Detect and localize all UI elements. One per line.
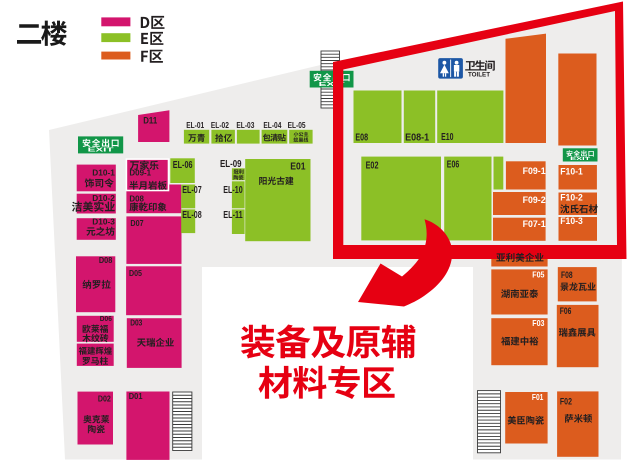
svg-text:EL-05: EL-05 <box>288 120 306 130</box>
svg-text:D10-3: D10-3 <box>92 218 115 227</box>
svg-text:F01: F01 <box>532 392 544 402</box>
svg-text:EL-09: EL-09 <box>220 159 242 170</box>
svg-text:F07-1: F07-1 <box>523 219 546 229</box>
svg-text:E08-1: E08-1 <box>405 132 430 143</box>
svg-text:F10-2: F10-2 <box>560 193 583 203</box>
svg-text:D10-2: D10-2 <box>92 194 115 203</box>
svg-text:D02: D02 <box>98 393 111 403</box>
svg-text:EL-01: EL-01 <box>186 120 204 130</box>
svg-text:E02: E02 <box>366 160 379 171</box>
svg-text:E01: E01 <box>290 161 306 172</box>
svg-text:F03: F03 <box>532 318 544 328</box>
svg-text:E10: E10 <box>441 132 453 143</box>
svg-text:E08: E08 <box>355 132 368 143</box>
svg-text:D01: D01 <box>129 391 143 401</box>
svg-text:D11: D11 <box>143 116 157 127</box>
svg-text:D08: D08 <box>99 256 113 265</box>
svg-text:EL-06: EL-06 <box>173 160 193 171</box>
svg-text:D10-1: D10-1 <box>92 169 115 178</box>
svg-text:TOILET: TOILET <box>468 72 490 79</box>
svg-text:D08: D08 <box>129 193 144 203</box>
svg-text:EL-04: EL-04 <box>263 120 281 130</box>
svg-text:EL-11: EL-11 <box>223 210 243 221</box>
svg-text:E06: E06 <box>447 159 460 170</box>
svg-text:F10-3: F10-3 <box>560 216 583 226</box>
svg-text:EL-07: EL-07 <box>182 185 202 196</box>
svg-text:F09-1: F09-1 <box>523 166 546 176</box>
svg-text:D05: D05 <box>129 268 142 278</box>
svg-text:F10-1: F10-1 <box>560 166 583 176</box>
svg-text:EL-03: EL-03 <box>236 120 254 130</box>
svg-text:F02: F02 <box>560 397 572 407</box>
svg-text:D07: D07 <box>130 218 143 228</box>
svg-text:EXIT: EXIT <box>570 156 591 161</box>
svg-text:F09-2: F09-2 <box>523 195 546 205</box>
svg-text:F08: F08 <box>561 270 573 280</box>
svg-text:EL-10: EL-10 <box>223 185 243 196</box>
svg-text:F06: F06 <box>560 306 572 316</box>
svg-text:F05: F05 <box>532 270 544 280</box>
svg-text:D06: D06 <box>100 314 112 323</box>
svg-text:D03: D03 <box>130 318 142 328</box>
svg-text:D09-1: D09-1 <box>129 168 151 178</box>
svg-text:EXIT: EXIT <box>88 147 115 153</box>
svg-text:EL-08: EL-08 <box>182 210 202 221</box>
svg-text:EL-02: EL-02 <box>211 120 229 130</box>
